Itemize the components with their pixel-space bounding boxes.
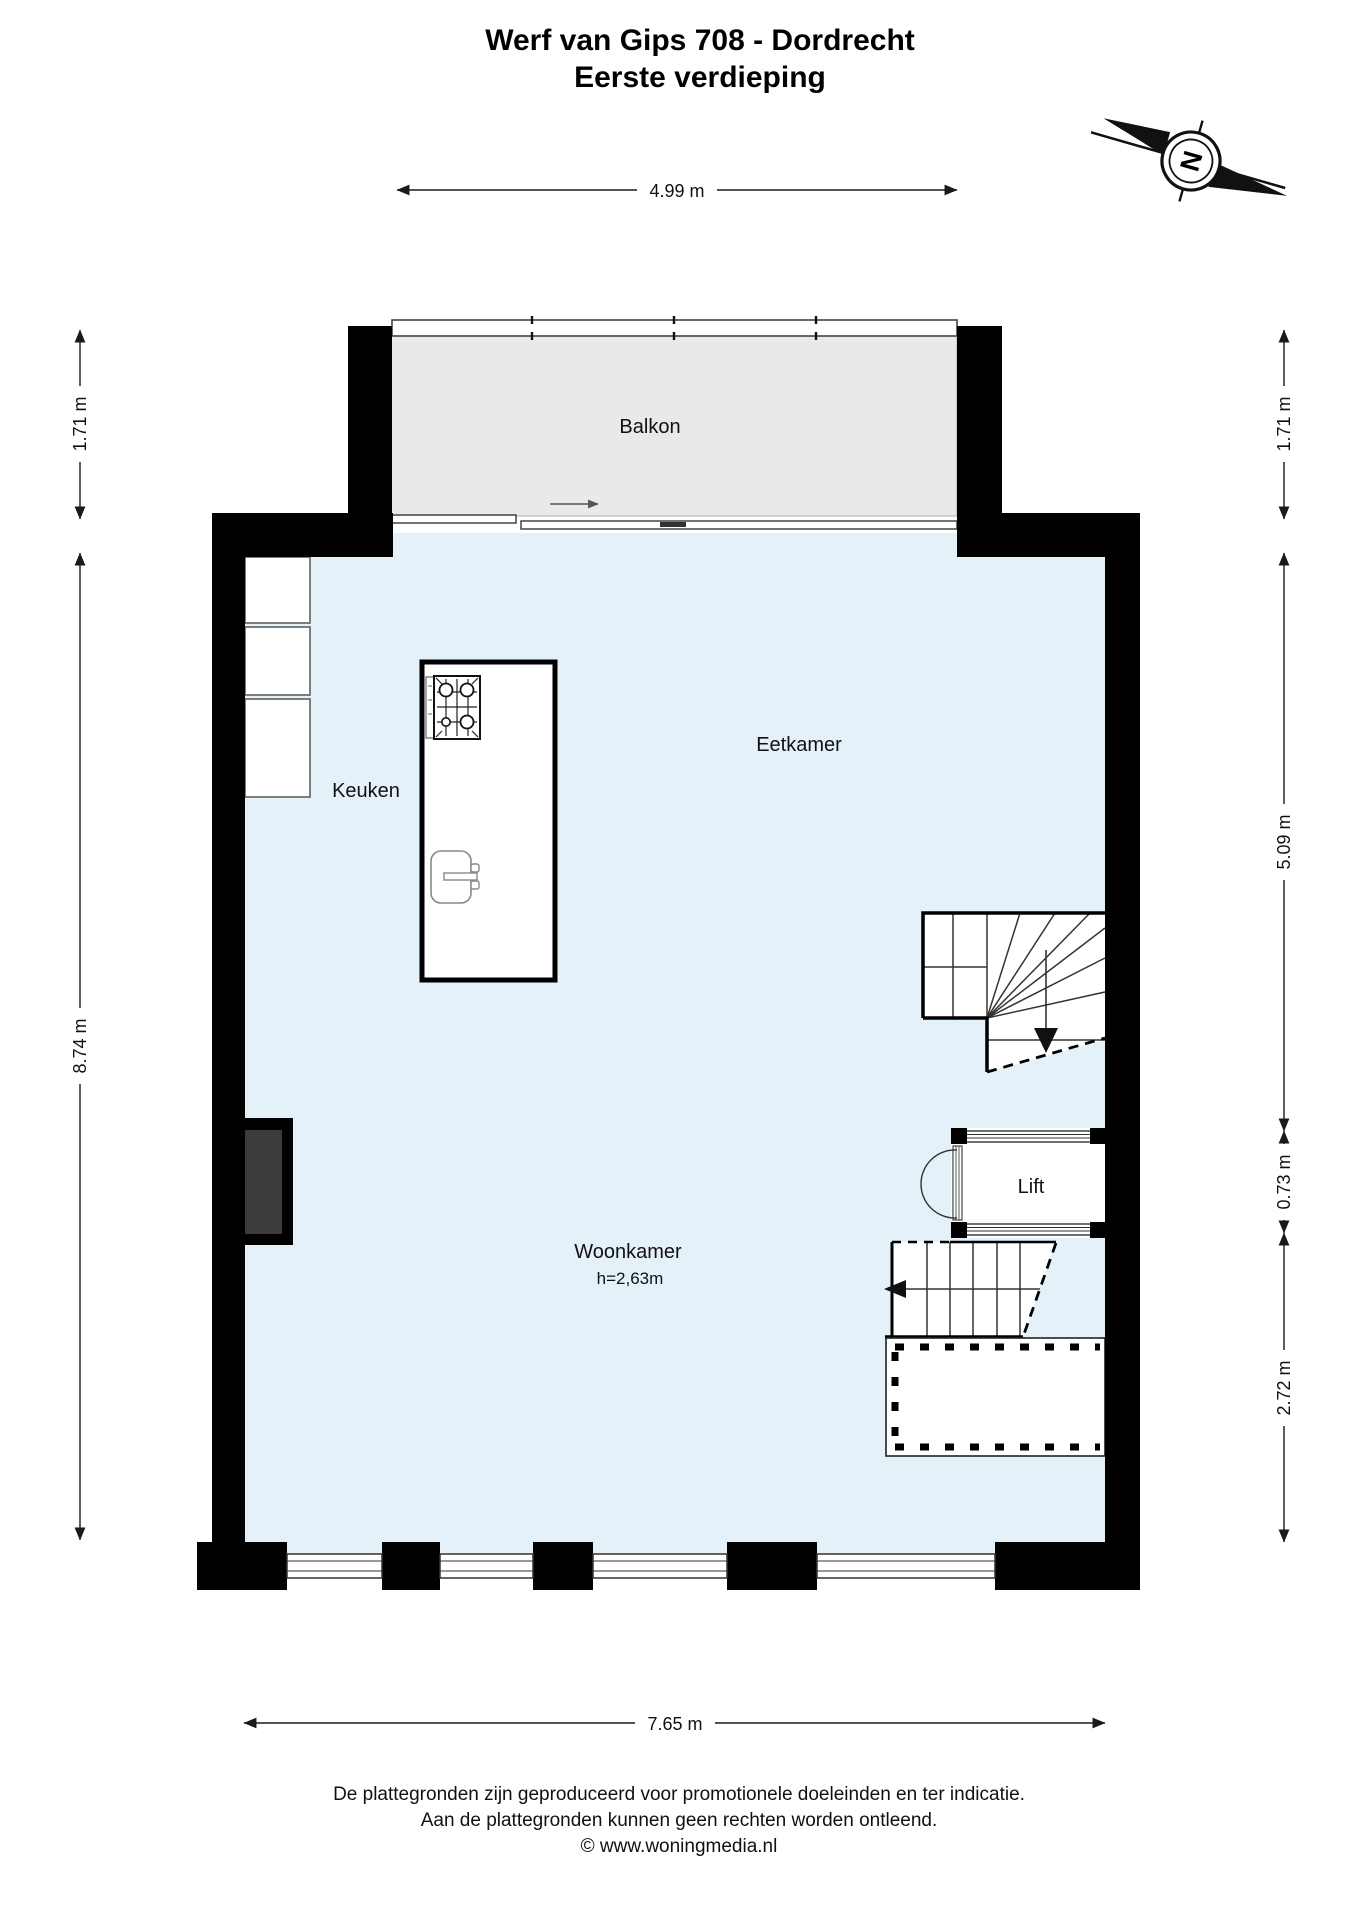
balcony-railing (392, 316, 957, 340)
dimension-left-main: 8.74 m (67, 553, 93, 1540)
floorplan-page: Werf van Gips 708 - Dordrecht Eerste ver… (0, 0, 1358, 1920)
wall-bottom-segment (995, 1542, 1140, 1590)
dimension-top: 4.99 m (397, 177, 957, 203)
wall-bottom-segment (533, 1542, 593, 1590)
footer-copyright: © www.woningmedia.nl (581, 1836, 778, 1857)
floorplan-canvas: Werf van Gips 708 - Dordrecht Eerste ver… (0, 0, 1358, 1920)
window (593, 1554, 727, 1578)
kitchen-cabinets (245, 557, 310, 797)
room-label-balkon: Balkon (619, 416, 680, 438)
wall-bottom-segment (382, 1542, 440, 1590)
chimney-shaft (245, 1118, 293, 1245)
sliding-door-fixed-pane (392, 515, 516, 523)
window (817, 1554, 995, 1578)
room-label-woonkamer-height: h=2,63m (597, 1269, 664, 1288)
compass-west-wing (1098, 113, 1170, 155)
sliding-door-handle (660, 522, 686, 527)
dimension-label-left-balcony: 1.71 m (70, 396, 90, 451)
lift-wall-top (966, 1131, 1091, 1142)
dimension-right-middle: 0.73 m (1271, 1131, 1297, 1233)
stove-icon (426, 676, 480, 739)
lift-wall-bottom (966, 1224, 1091, 1235)
kitchen-island (422, 662, 555, 980)
wall-balcony-left (348, 326, 392, 557)
footer-disclaimer-line2: Aan de plattegronden kunnen geen rechten… (421, 1810, 938, 1831)
room-label-keuken: Keuken (332, 780, 400, 802)
dimension-label-top: 4.99 m (649, 181, 704, 201)
room-label-lift: Lift (1018, 1176, 1045, 1198)
dimension-right-balcony: 1.71 m (1271, 330, 1297, 519)
dimension-label-right-upper: 5.09 m (1274, 814, 1294, 869)
dimension-label-right-balcony: 1.71 m (1274, 396, 1294, 451)
cabinet (245, 557, 310, 623)
window (440, 1554, 533, 1578)
footer-disclaimer-line1: De plattegronden zijn geproduceerd voor … (333, 1784, 1025, 1805)
wall-bottom-segment (197, 1542, 287, 1590)
wall-left (212, 513, 245, 1590)
dimension-label-right-lower: 2.72 m (1274, 1360, 1294, 1415)
dimension-left-balcony: 1.71 m (67, 330, 93, 519)
room-label-woonkamer: Woonkamer (574, 1241, 682, 1263)
compass-rose: N (1079, 92, 1300, 230)
wall-bottom-segment (727, 1542, 817, 1590)
stairwell-void (886, 1338, 1105, 1456)
dimension-label-left-main: 8.74 m (70, 1018, 90, 1073)
dimension-right-lower: 2.72 m (1271, 1233, 1297, 1542)
sliding-door-moving-pane (521, 521, 957, 529)
dimension-label-bottom: 7.65 m (647, 1714, 702, 1734)
window (287, 1554, 382, 1578)
cabinet (245, 699, 310, 797)
plan-title: Werf van Gips 708 - Dordrecht (485, 24, 915, 57)
room-label-eetkamer: Eetkamer (756, 734, 842, 756)
plan-subtitle: Eerste verdieping (574, 61, 826, 94)
cabinet (245, 627, 310, 695)
wall-balcony-right (957, 326, 1002, 557)
dimension-bottom: 7.65 m (244, 1710, 1105, 1736)
dimension-right-upper: 5.09 m (1271, 553, 1297, 1131)
dimension-label-right-middle: 0.73 m (1274, 1154, 1294, 1209)
wall-right (1105, 513, 1140, 1590)
